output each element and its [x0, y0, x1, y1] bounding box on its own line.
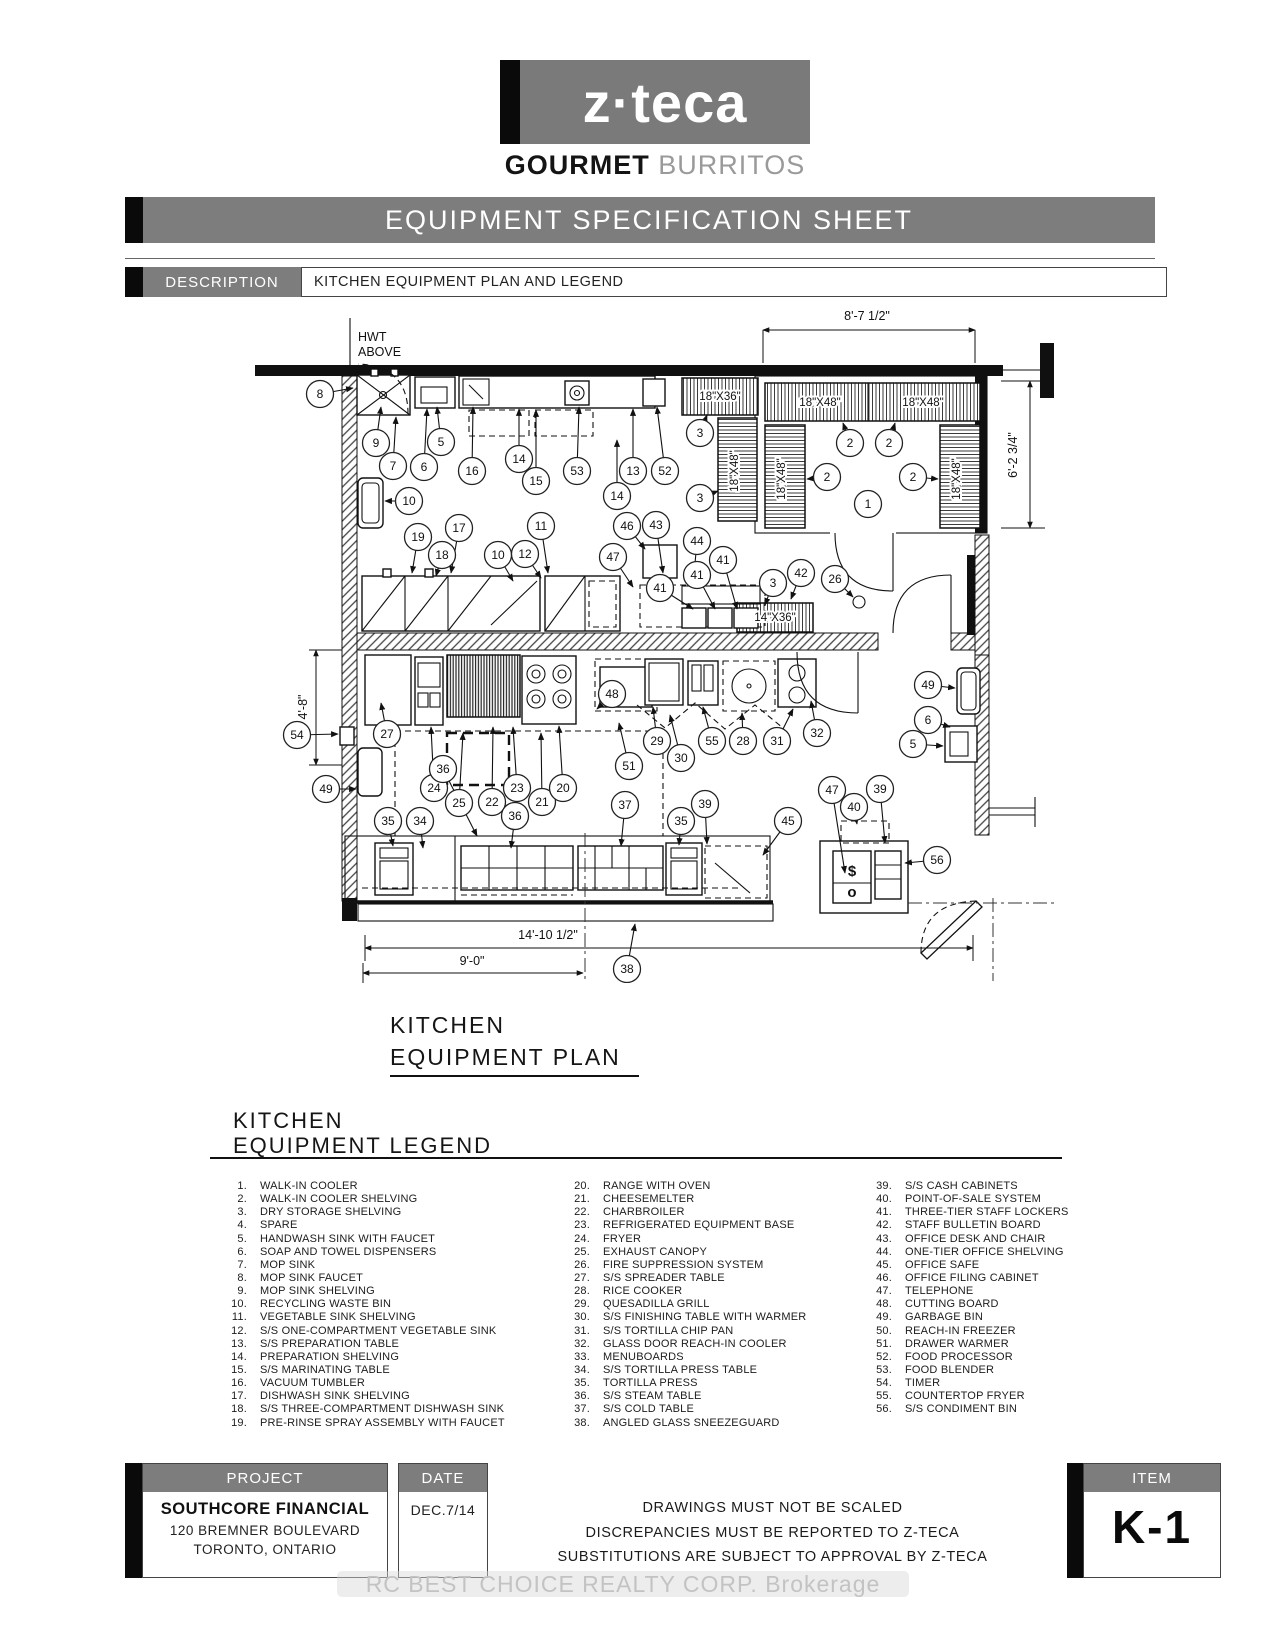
- legend-item-number: 27.: [553, 1272, 590, 1285]
- description-black-block: [125, 267, 143, 297]
- legend-item-text: WALK-IN COOLER: [260, 1180, 358, 1193]
- dishwash-counter: [362, 569, 540, 631]
- callout-number: 18: [435, 548, 449, 562]
- legend-item: 4.SPARE: [210, 1219, 505, 1232]
- callout-number: 20: [556, 781, 570, 795]
- legend-item: 13.S/S PREPARATION TABLE: [210, 1338, 505, 1351]
- callout-number: 36: [436, 762, 450, 776]
- callout-number: 13: [626, 464, 640, 478]
- callout-number: 52: [658, 464, 672, 478]
- legend-item: 12.S/S ONE-COMPARTMENT VEGETABLE SINK: [210, 1325, 505, 1338]
- legend-column-1: 1.WALK-IN COOLER2.WALK-IN COOLER SHELVIN…: [210, 1180, 505, 1430]
- legend-item-text: HANDWASH SINK WITH FAUCET: [260, 1233, 435, 1246]
- legend-item: 35.TORTILLA PRESS: [553, 1377, 806, 1390]
- dimension-label: 9'-0": [460, 954, 485, 968]
- legend-item-number: 41.: [855, 1206, 892, 1219]
- legend-item: 48.CUTTING BOARD: [855, 1298, 1069, 1311]
- legend-item-text: ANGLED GLASS SNEEZEGUARD: [603, 1417, 780, 1430]
- legend-item-text: S/S COLD TABLE: [603, 1403, 694, 1416]
- legend-item-number: 25.: [553, 1246, 590, 1259]
- callout-number: 41: [716, 553, 730, 567]
- legend-item-text: OFFICE SAFE: [905, 1259, 979, 1272]
- callout-number: 5: [438, 435, 445, 449]
- service-counter: [345, 836, 773, 921]
- legend-item-text: S/S ONE-COMPARTMENT VEGETABLE SINK: [260, 1325, 496, 1338]
- legend-item: 40.POINT-OF-SALE SYSTEM: [855, 1193, 1069, 1206]
- legend-item: 25.EXHAUST CANOPY: [553, 1246, 806, 1259]
- callout-number: 35: [381, 814, 395, 828]
- date-box: DATE DEC.7/14: [398, 1463, 488, 1578]
- callout-number: 16: [465, 464, 479, 478]
- legend-item-text: STAFF BULLETIN BOARD: [905, 1219, 1041, 1232]
- dimension-label: 6'-2 3/4": [1006, 432, 1020, 478]
- legend-item-text: S/S THREE-COMPARTMENT DISHWASH SINK: [260, 1403, 504, 1416]
- legend-item: 39.S/S CASH CABINETS: [855, 1180, 1069, 1193]
- legend-item-text: DRAWER WARMER: [905, 1338, 1009, 1351]
- legend-item-text: VACUUM TUMBLER: [260, 1377, 365, 1390]
- callout-number: 14: [512, 452, 526, 466]
- legend-item-text: DISHWASH SINK SHELVING: [260, 1390, 410, 1403]
- legend-item-text: RANGE WITH OVEN: [603, 1180, 711, 1193]
- legend-item-number: 15.: [210, 1364, 247, 1377]
- legend-item-text: S/S PREPARATION TABLE: [260, 1338, 399, 1351]
- callout-number: 3: [697, 491, 704, 505]
- legend-item-text: OFFICE DESK AND CHAIR: [905, 1233, 1046, 1246]
- prep-counter: [459, 376, 665, 436]
- callout-number: 8: [317, 387, 324, 401]
- legend-item: 32.GLASS DOOR REACH-IN COOLER: [553, 1338, 806, 1351]
- legend-item-number: 3.: [210, 1206, 247, 1219]
- shelf-size-label: 18"X48": [776, 458, 788, 499]
- legend-item: 18.S/S THREE-COMPARTMENT DISHWASH SINK: [210, 1403, 505, 1416]
- callout-number: 28: [736, 734, 750, 748]
- callout-number: 47: [825, 783, 839, 797]
- legend-item: 29.QUESADILLA GRILL: [553, 1298, 806, 1311]
- legend-item: 53.FOOD BLENDER: [855, 1364, 1069, 1377]
- callout-number: 37: [618, 798, 632, 812]
- callout-number: 29: [650, 734, 664, 748]
- legend-item-text: MOP SINK: [260, 1259, 315, 1272]
- shelf-size-label: 18"X48": [902, 397, 943, 409]
- dimension-label: 14'-10 1/2": [518, 928, 578, 942]
- legend-item-text: MOP SINK FAUCET: [260, 1272, 363, 1285]
- legend-item-text: THREE-TIER STAFF LOCKERS: [905, 1206, 1069, 1219]
- callout-number: 1: [865, 497, 872, 511]
- callout-number: 49: [319, 782, 333, 796]
- legend-item-number: 39.: [855, 1180, 892, 1193]
- legend-item: 54.TIMER: [855, 1377, 1069, 1390]
- callout-number: 12: [518, 547, 532, 561]
- legend-column-2: 20.RANGE WITH OVEN21.CHEESEMELTER22.CHAR…: [553, 1180, 806, 1430]
- callout-number: 42: [794, 566, 808, 580]
- brokerage-watermark: RC BEST CHOICE REALTY CORP. Brokerage: [337, 1571, 909, 1597]
- legend-item: 45.OFFICE SAFE: [855, 1259, 1069, 1272]
- legend-item: 34.S/S TORTILLA PRESS TABLE: [553, 1364, 806, 1377]
- legend-item-number: 4.: [210, 1219, 247, 1232]
- legend-item: 23.REFRIGERATED EQUIPMENT BASE: [553, 1219, 806, 1232]
- callout-number: 32: [810, 726, 824, 740]
- callout-number: 35: [674, 814, 688, 828]
- callout-number: 41: [690, 568, 704, 582]
- legend-item-number: 36.: [553, 1390, 590, 1403]
- legend-item: 24.FRYER: [553, 1233, 806, 1246]
- legend-item-text: CHARBROILER: [603, 1206, 685, 1219]
- legend-item-text: VEGETABLE SINK SHELVING: [260, 1311, 416, 1324]
- legend-item: 41.THREE-TIER STAFF LOCKERS: [855, 1206, 1069, 1219]
- legend-item-number: 37.: [553, 1403, 590, 1416]
- legend-item-number: 16.: [210, 1377, 247, 1390]
- item-label: ITEM: [1084, 1464, 1220, 1492]
- callout-number: 10: [491, 548, 505, 562]
- equipment-spec-sheet: { "brand": {"logo": "z·teca", "tag_bold"…: [0, 0, 1275, 1650]
- shelf-size-label: 18"X48": [799, 397, 840, 409]
- legend-item: 7.MOP SINK: [210, 1259, 505, 1272]
- legend-item-number: 48.: [855, 1298, 892, 1311]
- plan-title-line2: EQUIPMENT PLAN: [390, 1044, 639, 1077]
- legend-item-number: 51.: [855, 1338, 892, 1351]
- date-value: DEC.7/14: [399, 1502, 487, 1518]
- callout-number: 2: [910, 470, 917, 484]
- handwash-sink: [415, 377, 455, 408]
- legend-item: 43.OFFICE DESK AND CHAIR: [855, 1233, 1069, 1246]
- legend-item-text: PREPARATION SHELVING: [260, 1351, 399, 1364]
- legend-item-text: ONE-TIER OFFICE SHELVING: [905, 1246, 1064, 1259]
- legend-item-number: 26.: [553, 1259, 590, 1272]
- callout-number: 55: [705, 734, 719, 748]
- legend-item: 15.S/S MARINATING TABLE: [210, 1364, 505, 1377]
- legend-item-text: RECYCLING WASTE BIN: [260, 1298, 391, 1311]
- shelf-size-label: 18"X48": [729, 450, 741, 491]
- legend-item-number: 34.: [553, 1364, 590, 1377]
- legend-item-text: FOOD PROCESSOR: [905, 1351, 1013, 1364]
- legend-item-text: REACH-IN FREEZER: [905, 1325, 1016, 1338]
- description-label: DESCRIPTION: [143, 267, 301, 297]
- legend-item-number: 12.: [210, 1325, 247, 1338]
- legend-rule: [210, 1157, 1062, 1159]
- callout-number: 43: [649, 518, 663, 532]
- footer-black-bar: [125, 1463, 142, 1578]
- legend-item-text: REFRIGERATED EQUIPMENT BASE: [603, 1219, 794, 1232]
- legend-item: 6.SOAP AND TOWEL DISPENSERS: [210, 1246, 505, 1259]
- legend-item: 2.WALK-IN COOLER SHELVING: [210, 1193, 505, 1206]
- callout-number: 24: [427, 781, 441, 795]
- brand-tagline: GOURMET BURRITOS: [470, 150, 840, 181]
- legend-item-number: 9.: [210, 1285, 247, 1298]
- callout-number: 2: [847, 436, 854, 450]
- callout-number: 23: [510, 781, 524, 795]
- legend-item-number: 20.: [553, 1180, 590, 1193]
- callout-number: 25: [452, 796, 466, 810]
- legend-item-number: 47.: [855, 1285, 892, 1298]
- legend-item: 50.REACH-IN FREEZER: [855, 1325, 1069, 1338]
- legend-item-number: 32.: [553, 1338, 590, 1351]
- legend-item-text: S/S CONDIMENT BIN: [905, 1403, 1017, 1416]
- legend-item-number: 13.: [210, 1338, 247, 1351]
- shelf-size-label: 18"X48": [951, 458, 963, 499]
- legend-item-text: MENUBOARDS: [603, 1351, 684, 1364]
- vegetable-sink: [545, 576, 620, 631]
- legend-item: 31.S/S TORTILLA CHIP PAN: [553, 1325, 806, 1338]
- legend-item-number: 33.: [553, 1351, 590, 1364]
- legend-item-text: CUTTING BOARD: [905, 1298, 999, 1311]
- callout-number: 48: [605, 687, 619, 701]
- callout-number: 47: [606, 550, 620, 564]
- callout-number: 3: [697, 426, 704, 440]
- legend-item-text: SOAP AND TOWEL DISPENSERS: [260, 1246, 436, 1259]
- callout-number: 6: [925, 713, 932, 727]
- callout-number: 22: [485, 795, 499, 809]
- legend-item-text: QUESADILLA GRILL: [603, 1298, 710, 1311]
- legend-item-text: S/S SPREADER TABLE: [603, 1272, 725, 1285]
- banner-black-block: [125, 197, 143, 243]
- legend-item: 20.RANGE WITH OVEN: [553, 1180, 806, 1193]
- legend-item-text: MOP SINK SHELVING: [260, 1285, 375, 1298]
- legend-item: 3.DRY STORAGE SHELVING: [210, 1206, 505, 1219]
- legend-item-text: DRY STORAGE SHELVING: [260, 1206, 401, 1219]
- dimension-label: 8'-7 1/2": [844, 309, 890, 323]
- legend-item-text: EXHAUST CANOPY: [603, 1246, 707, 1259]
- legend-item-text: OFFICE FILING CABINET: [905, 1272, 1039, 1285]
- kitchen-equipment-plan-drawing: 8976516141553135214103322221342261918171…: [245, 303, 1055, 983]
- legend-item: 11.VEGETABLE SINK SHELVING: [210, 1311, 505, 1324]
- item-black-bar: [1067, 1463, 1083, 1578]
- project-address2: TORONTO, ONTARIO: [143, 1542, 387, 1557]
- legend-item-number: 31.: [553, 1325, 590, 1338]
- shelf-size-label: 18"X36": [699, 391, 740, 403]
- legend-item-number: 49.: [855, 1311, 892, 1324]
- legend-item-number: 43.: [855, 1233, 892, 1246]
- legend-item: 44.ONE-TIER OFFICE SHELVING: [855, 1246, 1069, 1259]
- callout-number: 36: [508, 809, 522, 823]
- legend-item-number: 30.: [553, 1311, 590, 1324]
- callout-number: 39: [698, 797, 712, 811]
- legend-item-number: 23.: [553, 1219, 590, 1232]
- callout-number: 53: [570, 464, 584, 478]
- legend-item-number: 21.: [553, 1193, 590, 1206]
- legend-column-3: 39.S/S CASH CABINETS40.POINT-OF-SALE SYS…: [855, 1180, 1069, 1417]
- legend-item-text: WALK-IN COOLER SHELVING: [260, 1193, 417, 1206]
- legend-item-number: 2.: [210, 1193, 247, 1206]
- brand-logo-black-bar: [500, 60, 520, 144]
- item-value: K-1: [1084, 1500, 1220, 1554]
- legend-item-number: 45.: [855, 1259, 892, 1272]
- legend-item: 28.RICE COOKER: [553, 1285, 806, 1298]
- legend-item-number: 14.: [210, 1351, 247, 1364]
- callout-number: 10: [402, 494, 416, 508]
- legend-item-number: 35.: [553, 1377, 590, 1390]
- legend-item: 22.CHARBROILER: [553, 1206, 806, 1219]
- callout-number: 2: [824, 470, 831, 484]
- callout-number: 39: [873, 782, 887, 796]
- legend-item-text: FIRE SUPPRESSION SYSTEM: [603, 1259, 763, 1272]
- callout-number: 9: [373, 436, 380, 450]
- date-label: DATE: [399, 1464, 487, 1492]
- project-address1: 120 BREMNER BOULEVARD: [143, 1523, 387, 1538]
- legend-item: 46.OFFICE FILING CABINET: [855, 1272, 1069, 1285]
- legend-item: 52.FOOD PROCESSOR: [855, 1351, 1069, 1364]
- description-value: KITCHEN EQUIPMENT PLAN AND LEGEND: [301, 267, 1167, 297]
- legend-item-number: 52.: [855, 1351, 892, 1364]
- legend-item: 5.HANDWASH SINK WITH FAUCET: [210, 1233, 505, 1246]
- legend-item-number: 46.: [855, 1272, 892, 1285]
- legend-item: 19.PRE-RINSE SPRAY ASSEMBLY WITH FAUCET: [210, 1417, 505, 1430]
- callout-number: 38: [620, 962, 634, 976]
- callout-number: 7: [390, 459, 397, 473]
- legend-item-number: 22.: [553, 1206, 590, 1219]
- plan-note: HWT: [358, 330, 387, 344]
- callout-number: 17: [452, 521, 466, 535]
- callout-number: 56: [930, 853, 944, 867]
- callout-number: 6: [421, 460, 428, 474]
- legend-item: 36.S/S STEAM TABLE: [553, 1390, 806, 1403]
- legend-item: 27.S/S SPREADER TABLE: [553, 1272, 806, 1285]
- legend-item-number: 18.: [210, 1403, 247, 1416]
- dimension-label: 4'-8": [296, 695, 310, 720]
- plan-title-line1: KITCHEN: [390, 1012, 639, 1039]
- legend-item: 9.MOP SINK SHELVING: [210, 1285, 505, 1298]
- legend-title-line2: EQUIPMENT LEGEND: [233, 1133, 492, 1158]
- legend-item-text: GLASS DOOR REACH-IN COOLER: [603, 1338, 787, 1351]
- legend-item-text: RICE COOKER: [603, 1285, 682, 1298]
- legend-item: 37.S/S COLD TABLE: [553, 1403, 806, 1416]
- legend-item: 16.VACUUM TUMBLER: [210, 1377, 505, 1390]
- legend-item-text: TORTILLA PRESS: [603, 1377, 698, 1390]
- legend-item-number: 24.: [553, 1233, 590, 1246]
- item-box: ITEM K-1: [1083, 1463, 1221, 1578]
- shelf-size-label: 14"X36": [754, 612, 795, 624]
- legend-item-text: TIMER: [905, 1377, 940, 1390]
- legend-item-number: 6.: [210, 1246, 247, 1259]
- callout-number: 30: [674, 751, 688, 765]
- legend-item-text: POINT-OF-SALE SYSTEM: [905, 1193, 1041, 1206]
- pos-counter: [820, 821, 908, 913]
- legend-item-number: 11.: [210, 1311, 247, 1324]
- callout-number: 54: [290, 728, 304, 742]
- legend-item-number: 28.: [553, 1285, 590, 1298]
- legend-item-number: 55.: [855, 1390, 892, 1403]
- legend-item-number: 8.: [210, 1272, 247, 1285]
- legend-item-text: TELEPHONE: [905, 1285, 973, 1298]
- callout-number: 5: [910, 737, 917, 751]
- legend-item-number: 19.: [210, 1417, 247, 1430]
- divider-rule: [125, 258, 1155, 259]
- legend-item: 47.TELEPHONE: [855, 1285, 1069, 1298]
- legend-item-number: 53.: [855, 1364, 892, 1377]
- tagline-bold: GOURMET: [505, 150, 650, 180]
- legend-item-text: GARBAGE BIN: [905, 1311, 983, 1324]
- legend-item: 1.WALK-IN COOLER: [210, 1180, 505, 1193]
- legend-item: 14.PREPARATION SHELVING: [210, 1351, 505, 1364]
- legend-item: 30.S/S FINISHING TABLE WITH WARMER: [553, 1311, 806, 1324]
- callout-number: 46: [620, 519, 634, 533]
- legend-item: 38.ANGLED GLASS SNEEZEGUARD: [553, 1417, 806, 1430]
- legend-item-text: S/S TORTILLA CHIP PAN: [603, 1325, 733, 1338]
- legend-item-text: FOOD BLENDER: [905, 1364, 994, 1377]
- plan-note: ABOVE: [358, 345, 401, 359]
- legend-item: 56.S/S CONDIMENT BIN: [855, 1403, 1069, 1416]
- legend-item-text: CHEESEMELTER: [603, 1193, 694, 1206]
- legend-item-number: 29.: [553, 1298, 590, 1311]
- legend-item-text: S/S MARINATING TABLE: [260, 1364, 390, 1377]
- legend-item-number: 44.: [855, 1246, 892, 1259]
- legend-item-text: S/S CASH CABINETS: [905, 1180, 1018, 1193]
- legend-item-number: 1.: [210, 1180, 247, 1193]
- legend-item-number: 56.: [855, 1403, 892, 1416]
- legend-item: 26.FIRE SUPPRESSION SYSTEM: [553, 1259, 806, 1272]
- project-name: SOUTHCORE FINANCIAL: [143, 1500, 387, 1519]
- footer-notes: DRAWINGS MUST NOT BE SCALED DISCREPANCIE…: [545, 1496, 1000, 1570]
- callout-number: 26: [828, 572, 842, 586]
- plan-title: KITCHEN EQUIPMENT PLAN: [390, 1012, 639, 1077]
- legend-item-number: 10.: [210, 1298, 247, 1311]
- legend-item-text: S/S FINISHING TABLE WITH WARMER: [603, 1311, 806, 1324]
- project-label: PROJECT: [143, 1464, 387, 1492]
- legend-item-number: 5.: [210, 1233, 247, 1246]
- legend-item-text: S/S STEAM TABLE: [603, 1390, 702, 1403]
- sheet-title-banner: EQUIPMENT SPECIFICATION SHEET: [143, 197, 1155, 243]
- callout-number: 14: [610, 489, 624, 503]
- legend-title: KITCHEN EQUIPMENT LEGEND: [233, 1108, 492, 1158]
- legend-item: 8.MOP SINK FAUCET: [210, 1272, 505, 1285]
- project-box: PROJECT SOUTHCORE FINANCIAL 120 BREMNER …: [142, 1463, 388, 1578]
- legend-item-number: 40.: [855, 1193, 892, 1206]
- legend-item: 55.COUNTERTOP FRYER: [855, 1390, 1069, 1403]
- callout-number: 31: [770, 734, 784, 748]
- callout-number: 19: [411, 530, 425, 544]
- callout-number: 45: [781, 814, 795, 828]
- legend-item-text: S/S TORTILLA PRESS TABLE: [603, 1364, 757, 1377]
- equipment-glyph: o: [847, 884, 856, 901]
- legend-item-text: SPARE: [260, 1219, 297, 1232]
- legend-item: 21.CHEESEMELTER: [553, 1193, 806, 1206]
- callout-number: 27: [380, 727, 394, 741]
- legend-item-number: 50.: [855, 1325, 892, 1338]
- callout-number: 49: [921, 678, 935, 692]
- legend-title-line1: KITCHEN: [233, 1108, 492, 1133]
- equipment-glyph: $: [848, 863, 857, 880]
- legend-item: 51.DRAWER WARMER: [855, 1338, 1069, 1351]
- legend-item-text: COUNTERTOP FRYER: [905, 1390, 1025, 1403]
- legend-item-number: 7.: [210, 1259, 247, 1272]
- legend-item-text: PRE-RINSE SPRAY ASSEMBLY WITH FAUCET: [260, 1417, 505, 1430]
- legend-item-number: 42.: [855, 1219, 892, 1232]
- footer-note-1: DRAWINGS MUST NOT BE SCALED: [545, 1496, 1000, 1521]
- legend-item-number: 38.: [553, 1417, 590, 1430]
- callout-number: 3: [770, 576, 777, 590]
- legend-item-number: 17.: [210, 1390, 247, 1403]
- callout-number: 51: [622, 759, 636, 773]
- brand-logo-text: z·teca: [520, 60, 810, 144]
- legend-item: 17.DISHWASH SINK SHELVING: [210, 1390, 505, 1403]
- callout-number: 21: [535, 795, 549, 809]
- legend-item: 42.STAFF BULLETIN BOARD: [855, 1219, 1069, 1232]
- legend-item: 49.GARBAGE BIN: [855, 1311, 1069, 1324]
- callout-number: 15: [529, 474, 543, 488]
- callout-number: 34: [413, 814, 427, 828]
- legend-item: 10.RECYCLING WASTE BIN: [210, 1298, 505, 1311]
- callout-number: 40: [847, 800, 861, 814]
- footer-note-2: DISCREPANCIES MUST BE REPORTED TO Z-TECA: [545, 1521, 1000, 1546]
- footer-note-3: SUBSTITUTIONS ARE SUBJECT TO APPROVAL BY…: [545, 1545, 1000, 1570]
- callout-number: 41: [653, 581, 667, 595]
- legend-item-number: 54.: [855, 1377, 892, 1390]
- tagline-light: BURRITOS: [658, 150, 805, 180]
- callout-number: 11: [535, 519, 548, 533]
- callout-number: 44: [690, 534, 704, 548]
- legend-item: 33.MENUBOARDS: [553, 1351, 806, 1364]
- callout-number: 2: [886, 436, 893, 450]
- legend-item-text: FRYER: [603, 1233, 641, 1246]
